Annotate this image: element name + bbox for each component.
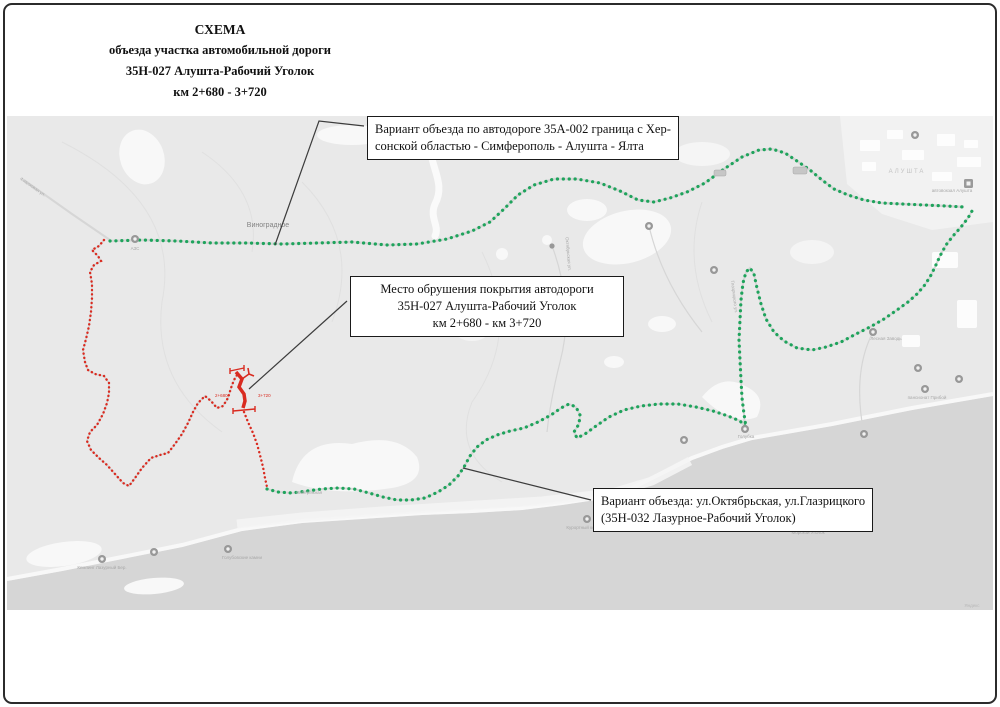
callout-detour-main-line1: Вариант объезда по автодороге 35А-002 гр… bbox=[375, 121, 671, 138]
label-lesnaya: Лесная Заводь bbox=[870, 336, 902, 341]
label-pansionat: пансионат Прибой bbox=[908, 394, 947, 400]
callout-detour-local-line2: (35Н-032 Лазурное-Рабочий Уголок) bbox=[601, 510, 865, 527]
callout-detour-main: Вариант объезда по автодороге 35А-002 гр… bbox=[367, 116, 679, 160]
map-attribution: Яндекс bbox=[964, 603, 980, 608]
label-bus-station: автовокзал Алушта bbox=[932, 188, 973, 193]
road-number-badge bbox=[714, 170, 726, 176]
map-canvas: 2+680 3+720 bbox=[5, 5, 997, 704]
callout-collapse-line3: км 2+680 - км 3+720 bbox=[358, 315, 616, 332]
label-alushta: АЛУШТА bbox=[889, 169, 926, 175]
km-mark-start: 2+680 bbox=[215, 393, 228, 398]
callout-collapse-line1: Место обрушения покрытия автодороги bbox=[358, 281, 616, 298]
label-naberezhnaya: Набережная bbox=[296, 490, 323, 495]
label-azs: АЗС bbox=[131, 246, 141, 251]
scheme-frame: СХЕМА объезда участка автомобильной доро… bbox=[3, 3, 997, 704]
km-mark-end: 3+720 bbox=[258, 393, 271, 398]
callout-detour-local-line1: Вариант объезда: ул.Октябрьская, ул.Глаз… bbox=[601, 493, 865, 510]
road-number-badge bbox=[793, 167, 807, 174]
callout-detour-main-line2: сонской областью - Симферополь - Алушта … bbox=[375, 138, 671, 155]
callout-collapse: Место обрушения покрытия автодороги 35Н-… bbox=[350, 276, 624, 337]
callout-collapse-line2: 35Н-027 Алушта-Рабочий Уголок bbox=[358, 298, 616, 315]
label-golubka: Голубка bbox=[738, 434, 755, 439]
label-golubovskie: Голубовские камни bbox=[222, 555, 263, 560]
label-kemping: Кемпинг Лазурный Бер. bbox=[77, 564, 126, 570]
callout-detour-local: Вариант объезда: ул.Октябрьская, ул.Глаз… bbox=[593, 488, 873, 532]
